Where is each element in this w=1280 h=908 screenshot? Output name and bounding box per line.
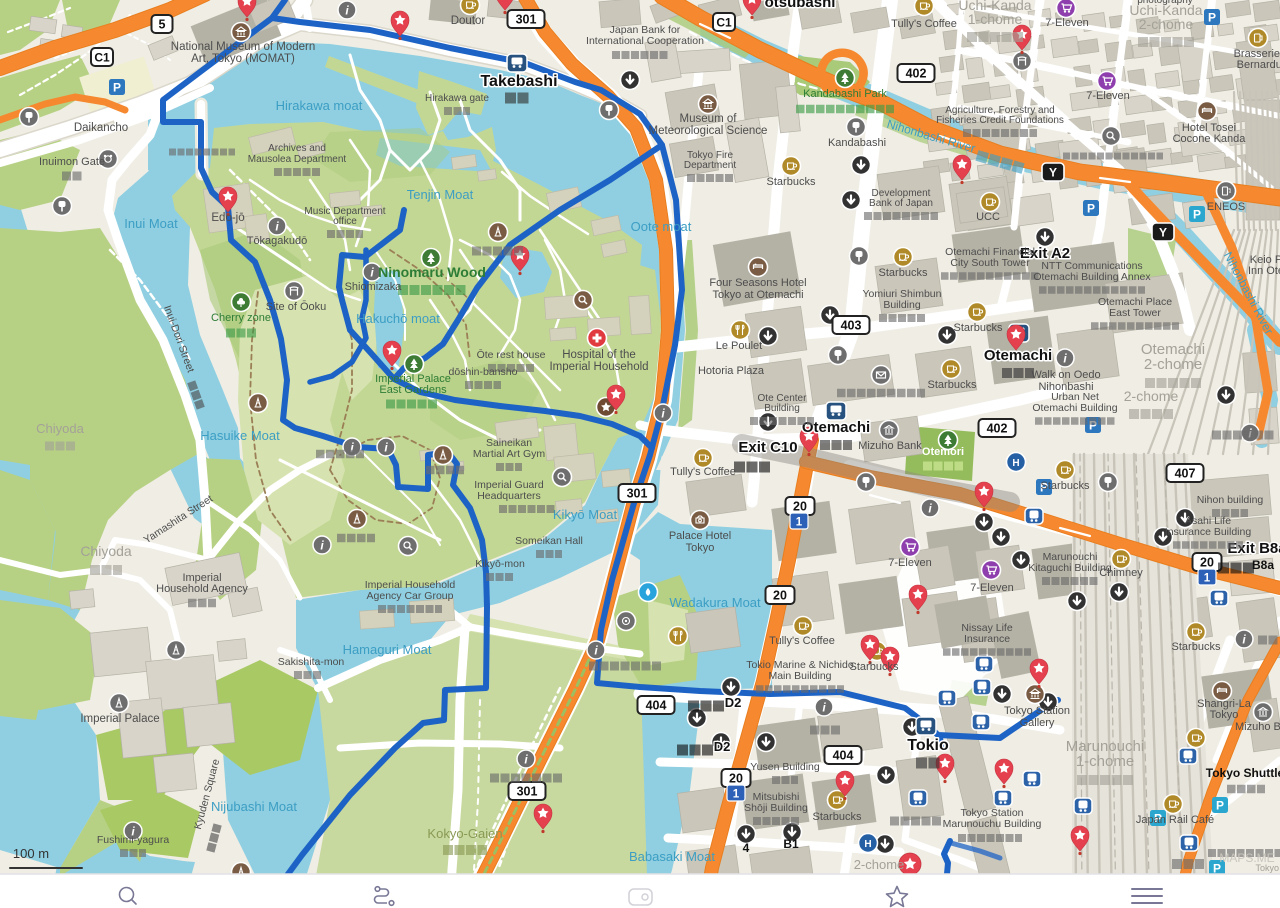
svg-text:dōshin-bansho: dōshin-bansho (449, 366, 518, 378)
svg-text:Kitaguchi Building: Kitaguchi Building (1028, 562, 1112, 574)
svg-text:Starbucks: Starbucks (928, 379, 977, 391)
svg-text:Babasaki Moat: Babasaki Moat (629, 849, 715, 864)
svg-text:Sakishita-mon: Sakishita-mon (278, 656, 345, 668)
svg-text:Tully's Coffee: Tully's Coffee (670, 466, 736, 478)
svg-text:Inuimon Gate: Inuimon Gate (39, 156, 105, 168)
svg-text:Otemachi Building Annex: Otemachi Building Annex (1033, 271, 1151, 283)
svg-text:Chiyoda: Chiyoda (80, 543, 132, 559)
svg-text:Gallery: Gallery (1020, 717, 1055, 729)
svg-text:Inui Moat: Inui Moat (124, 216, 178, 231)
svg-text:Hamaguri Moat: Hamaguri Moat (343, 642, 432, 657)
svg-text:otsubashi: otsubashi (765, 0, 836, 11)
svg-text:Exit B8a: Exit B8a (1227, 540, 1280, 557)
svg-text:Palace Hotel: Palace Hotel (669, 530, 731, 542)
svg-text:7-Eleven: 7-Eleven (888, 557, 931, 569)
svg-text:Daikancho: Daikancho (74, 122, 128, 134)
svg-text:Hasuike Moat: Hasuike Moat (200, 428, 280, 443)
svg-text:Site of Ōoku: Site of Ōoku (266, 301, 327, 313)
svg-text:Imperial Palace: Imperial Palace (80, 713, 159, 725)
svg-text:Shiomizaka: Shiomizaka (345, 281, 403, 293)
svg-text:C1: C1 (94, 51, 110, 65)
svg-text:Art, Tokyo (MOMAT): Art, Tokyo (MOMAT) (191, 53, 295, 65)
svg-text:Cherry zone: Cherry zone (211, 312, 271, 324)
svg-text:Nihon building: Nihon building (1197, 494, 1264, 506)
svg-text:Hirakawa moat: Hirakawa moat (276, 98, 363, 113)
svg-text:7-Eleven: 7-Eleven (1045, 17, 1088, 29)
svg-text:Ōte rest house: Ōte rest house (477, 349, 546, 361)
svg-text:P: P (1216, 799, 1224, 813)
svg-text:Department: Department (684, 160, 736, 171)
svg-text:Insurance Building: Insurance Building (1165, 526, 1252, 538)
svg-text:Building: Building (883, 299, 921, 311)
svg-text:7-Eleven: 7-Eleven (1086, 90, 1129, 102)
svg-text:B1: B1 (783, 837, 799, 851)
svg-text:1-chome: 1-chome (1076, 753, 1134, 770)
svg-text:301: 301 (517, 785, 538, 799)
svg-text:Starbucks: Starbucks (1172, 641, 1221, 653)
svg-text:4: 4 (743, 841, 750, 855)
svg-text:ENEOS: ENEOS (1207, 201, 1246, 213)
svg-text:Headquarters: Headquarters (477, 490, 541, 502)
svg-text:Inn Ote: Inn Ote (1248, 265, 1280, 277)
svg-text:City South Tower: City South Tower (950, 257, 1030, 269)
svg-text:404: 404 (646, 699, 667, 713)
svg-text:1: 1 (1204, 573, 1211, 585)
svg-text:Mizuho Ba: Mizuho Ba (1235, 721, 1280, 733)
svg-text:Y: Y (1049, 166, 1057, 180)
svg-text:Tully's Coffee: Tully's Coffee (891, 18, 957, 30)
svg-text:Doutor: Doutor (451, 15, 486, 27)
svg-text:Walk on Oedo: Walk on Oedo (1031, 369, 1100, 381)
svg-text:Tokyo Shuttle: Tokyo Shuttle (1206, 766, 1280, 780)
svg-text:Starbucks: Starbucks (850, 661, 899, 673)
svg-text:P: P (1087, 202, 1095, 216)
svg-text:Starbucks: Starbucks (813, 811, 862, 823)
svg-text:Chiyoda: Chiyoda (36, 421, 84, 436)
svg-text:B8a: B8a (1252, 558, 1274, 572)
svg-text:National Museum of Modern: National Museum of Modern (171, 41, 315, 53)
svg-text:Marunouchu Building: Marunouchu Building (943, 818, 1042, 830)
svg-text:Starbucks: Starbucks (954, 322, 1003, 334)
svg-text:Ninomaru Wood: Ninomaru Wood (378, 264, 486, 280)
svg-text:Mizuho Bank: Mizuho Bank (858, 440, 922, 452)
svg-text:Hotoria Plaza: Hotoria Plaza (698, 365, 765, 377)
svg-text:Tokyo: Tokyo (1210, 709, 1239, 721)
svg-text:7-Eleven: 7-Eleven (970, 582, 1013, 594)
svg-text:Main Building: Main Building (768, 670, 831, 682)
svg-text:20: 20 (773, 589, 787, 603)
svg-text:402: 402 (987, 422, 1008, 436)
svg-text:Fisheries Credit Foundations: Fisheries Credit Foundations (936, 115, 1064, 126)
svg-text:1-chome: 1-chome (968, 11, 1023, 27)
svg-text:Otemachi Building: Otemachi Building (1032, 402, 1117, 414)
svg-text:20: 20 (729, 772, 743, 786)
svg-text:Someikan Hall: Someikan Hall (515, 535, 583, 547)
svg-text:Museum of: Museum of (680, 113, 738, 125)
svg-text:Hospital of the: Hospital of the (562, 349, 636, 361)
svg-text:Nijubashi Moat: Nijubashi Moat (211, 799, 297, 814)
svg-text:2-chome: 2-chome (1144, 356, 1202, 373)
svg-text:Household Agency: Household Agency (156, 583, 248, 595)
svg-text:Hirakawa gate: Hirakawa gate (425, 93, 489, 104)
svg-text:Wadakura Moat: Wadakura Moat (669, 595, 761, 610)
svg-text:Yusen Building: Yusen Building (750, 761, 820, 773)
svg-text:C1: C1 (716, 16, 732, 30)
svg-text:Tokyo Station: Tokyo Station (1004, 705, 1070, 717)
svg-text:Martial Art Gym: Martial Art Gym (473, 448, 546, 460)
svg-text:402: 402 (906, 67, 927, 81)
svg-text:Tenjin Moat: Tenjin Moat (407, 187, 474, 202)
svg-text:Imperial Household: Imperial Household (549, 361, 648, 373)
svg-text:East Gardens: East Gardens (379, 384, 447, 396)
svg-text:Tōkagakudō: Tōkagakudō (247, 235, 308, 247)
svg-text:1: 1 (796, 517, 803, 529)
svg-text:Kandabashi: Kandabashi (828, 137, 886, 149)
svg-text:Tokyo b: Tokyo b (1255, 863, 1280, 873)
svg-text:Kikyō Moat: Kikyō Moat (553, 507, 618, 522)
svg-text:UCC: UCC (976, 211, 1000, 223)
svg-text:Starbucks: Starbucks (879, 267, 928, 279)
svg-text:Otemachi: Otemachi (984, 347, 1052, 364)
svg-text:H: H (1012, 458, 1019, 469)
svg-text:Shōji Building: Shōji Building (744, 802, 808, 814)
svg-text:1: 1 (733, 789, 740, 801)
svg-text:Bank of Japan: Bank of Japan (869, 198, 933, 209)
svg-text:2-chome: 2-chome (854, 857, 905, 872)
svg-text:Japan Rail Café: Japan Rail Café (1136, 814, 1214, 826)
svg-text:Bernardus: Bernardus (1237, 59, 1280, 71)
svg-text:Kokyo-Gaien: Kokyo-Gaien (427, 826, 502, 841)
svg-text:D2: D2 (714, 739, 731, 754)
svg-text:Y: Y (1159, 226, 1167, 240)
svg-text:Archives and: Archives and (268, 143, 326, 154)
svg-text:Oote moat: Oote moat (631, 219, 692, 234)
svg-text:Exit C10: Exit C10 (738, 439, 797, 456)
svg-text:Kandabashi Park: Kandabashi Park (803, 88, 887, 100)
svg-text:H: H (864, 839, 871, 850)
svg-text:5: 5 (159, 18, 166, 32)
svg-text:407: 407 (1175, 467, 1196, 481)
svg-text:Meteorological Science: Meteorological Science (649, 125, 768, 137)
svg-text:Kikyō-mon: Kikyō-mon (475, 558, 525, 570)
svg-text:Takebashi: Takebashi (480, 73, 557, 90)
svg-text:Agency Car Group: Agency Car Group (367, 590, 454, 602)
svg-text:301: 301 (516, 13, 537, 27)
svg-text:100 m: 100 m (13, 846, 49, 861)
svg-text:2-chome: 2-chome (1124, 388, 1179, 404)
svg-text:Building: Building (764, 403, 800, 414)
svg-text:301: 301 (627, 487, 648, 501)
svg-text:East Tower: East Tower (1109, 307, 1161, 319)
svg-text:Edo-jō: Edo-jō (211, 212, 244, 224)
svg-text:Tokyo at Otemachi: Tokyo at Otemachi (712, 289, 803, 301)
svg-text:Insurance: Insurance (964, 633, 1010, 645)
svg-text:Le Poulet: Le Poulet (716, 340, 762, 352)
svg-text:P: P (1208, 11, 1216, 25)
svg-text:International Cooperation: International Cooperation (586, 35, 704, 47)
svg-text:Tokio: Tokio (907, 737, 949, 754)
svg-text:P: P (113, 81, 121, 95)
svg-text:Starbucks: Starbucks (1041, 480, 1090, 492)
svg-text:20: 20 (1200, 556, 1214, 570)
svg-text:403: 403 (841, 319, 862, 333)
svg-text:Mausolea Department: Mausolea Department (248, 154, 347, 165)
svg-text:Fushimi-yagura: Fushimi-yagura (97, 834, 170, 846)
svg-text:P: P (1193, 208, 1201, 222)
svg-text:D2: D2 (725, 695, 742, 710)
svg-text:Starbucks: Starbucks (767, 176, 816, 188)
svg-text:Cocone Kanda: Cocone Kanda (1173, 133, 1247, 145)
svg-text:404: 404 (833, 749, 854, 763)
svg-text:Tully's Coffee: Tully's Coffee (769, 635, 835, 647)
svg-text:office: office (333, 216, 357, 227)
svg-text:20: 20 (793, 500, 807, 514)
svg-text:Hakuchō moat: Hakuchō moat (356, 311, 440, 326)
svg-text:Tokyo: Tokyo (686, 542, 715, 554)
svg-text:Four Seasons Hotel: Four Seasons Hotel (709, 277, 806, 289)
svg-text:2-chome: 2-chome (1139, 16, 1194, 32)
